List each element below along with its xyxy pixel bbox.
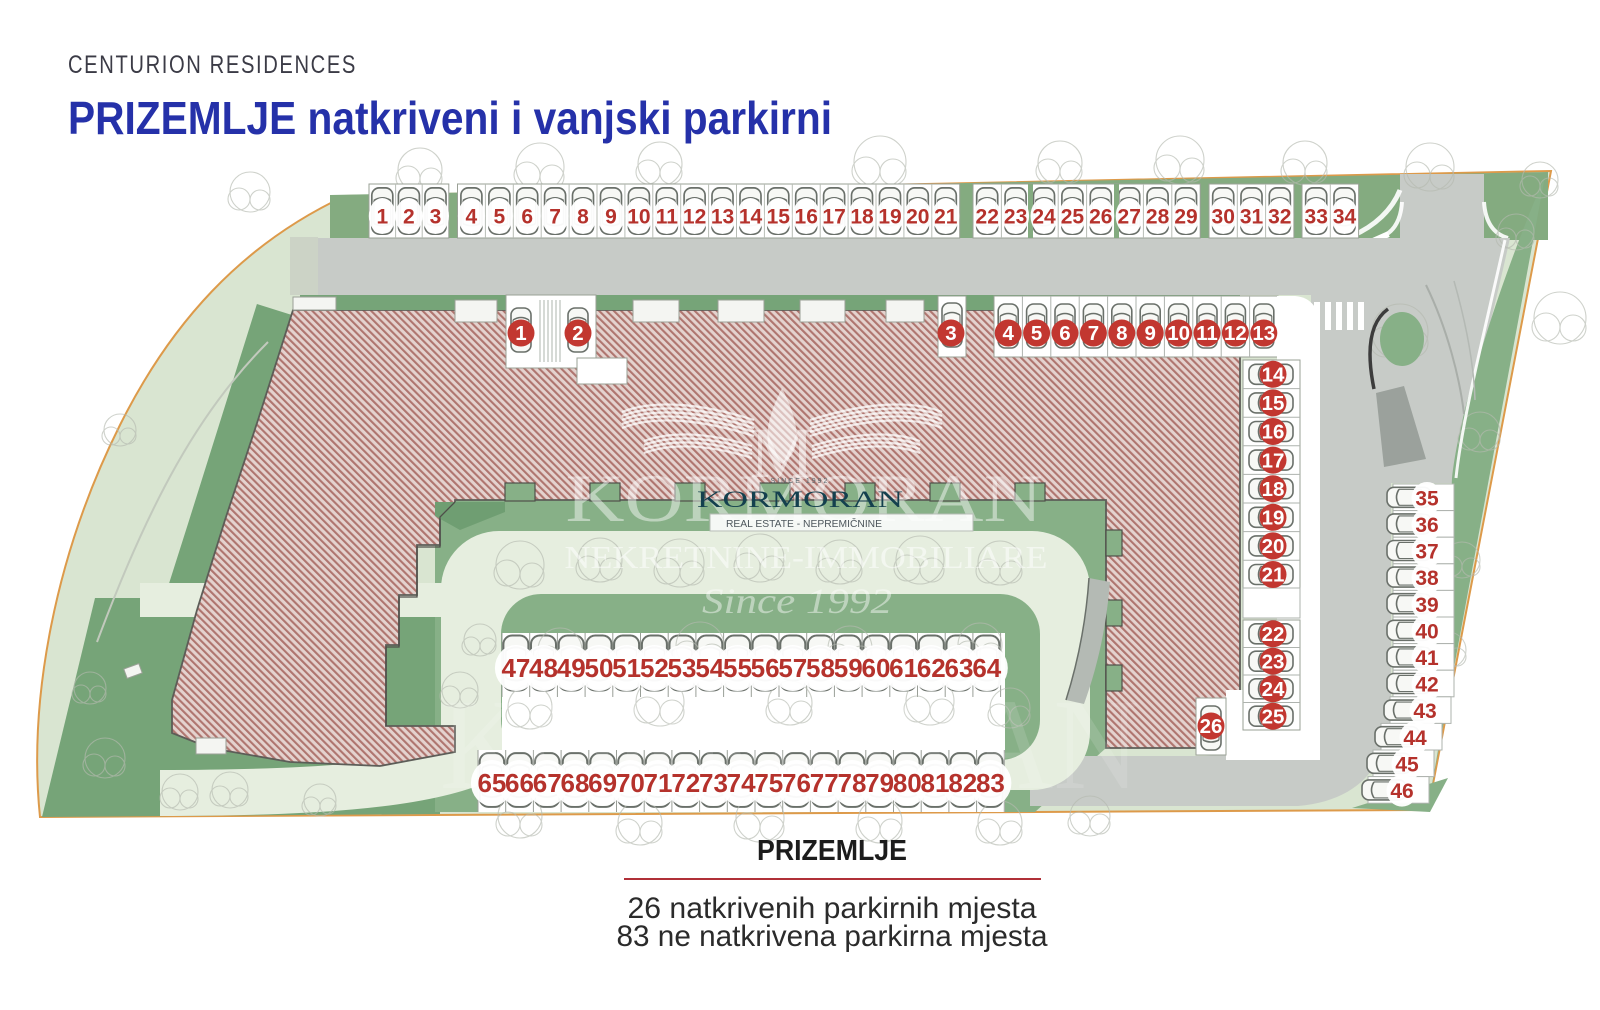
svg-text:49: 49 xyxy=(557,653,586,683)
svg-text:54: 54 xyxy=(695,653,724,683)
svg-text:45: 45 xyxy=(1395,753,1419,776)
svg-text:43: 43 xyxy=(1413,700,1436,723)
svg-text:60: 60 xyxy=(862,653,891,683)
svg-text:51: 51 xyxy=(612,653,641,683)
svg-text:30: 30 xyxy=(1212,205,1235,228)
svg-text:17: 17 xyxy=(1262,449,1285,472)
svg-text:15: 15 xyxy=(767,205,791,228)
svg-text:19: 19 xyxy=(878,205,901,228)
svg-text:31: 31 xyxy=(1240,205,1264,228)
svg-text:17: 17 xyxy=(822,205,845,228)
svg-text:66: 66 xyxy=(505,768,534,798)
svg-text:16: 16 xyxy=(1262,421,1285,444)
svg-text:12: 12 xyxy=(683,205,706,228)
svg-text:71: 71 xyxy=(644,768,673,798)
svg-text:26: 26 xyxy=(1089,205,1112,228)
svg-text:25: 25 xyxy=(1061,205,1085,228)
svg-text:6: 6 xyxy=(1059,322,1070,345)
svg-text:PRIZEMLJE natkriveni i vanjski: PRIZEMLJE natkriveni i vanjski parkirni xyxy=(68,92,832,144)
svg-text:74: 74 xyxy=(727,768,756,798)
svg-text:18: 18 xyxy=(850,205,874,228)
svg-text:76: 76 xyxy=(782,768,811,798)
svg-text:Since 1992: Since 1992 xyxy=(702,581,892,621)
svg-text:1: 1 xyxy=(376,205,388,228)
svg-text:19: 19 xyxy=(1262,507,1285,530)
svg-text:83 ne natkrivena parkirna mjes: 83 ne natkrivena parkirna mjesta xyxy=(617,920,1048,953)
svg-text:38: 38 xyxy=(1415,567,1439,590)
svg-text:14: 14 xyxy=(739,205,763,228)
svg-text:63: 63 xyxy=(945,653,974,683)
svg-text:33: 33 xyxy=(1305,205,1328,228)
svg-text:PRIZEMLJE: PRIZEMLJE xyxy=(757,835,907,867)
svg-text:18: 18 xyxy=(1262,478,1285,501)
svg-text:56: 56 xyxy=(751,653,780,683)
svg-text:20: 20 xyxy=(1262,535,1285,558)
svg-text:5: 5 xyxy=(1031,322,1042,345)
svg-text:72: 72 xyxy=(671,768,700,798)
svg-text:32: 32 xyxy=(1268,205,1291,228)
svg-text:52: 52 xyxy=(640,653,669,683)
svg-text:6: 6 xyxy=(521,205,533,228)
svg-text:7: 7 xyxy=(1088,322,1099,345)
svg-text:53: 53 xyxy=(668,653,697,683)
svg-text:34: 34 xyxy=(1333,205,1357,228)
svg-text:23: 23 xyxy=(1262,650,1285,673)
svg-text:24: 24 xyxy=(1262,678,1285,701)
svg-text:80: 80 xyxy=(893,768,922,798)
svg-text:83: 83 xyxy=(976,768,1005,798)
svg-text:10: 10 xyxy=(627,205,650,228)
svg-text:36: 36 xyxy=(1415,514,1438,537)
svg-text:27: 27 xyxy=(1118,205,1141,228)
svg-text:KORMORAN: KORMORAN xyxy=(697,487,904,512)
svg-text:8: 8 xyxy=(577,205,589,228)
svg-text:15: 15 xyxy=(1262,392,1285,415)
svg-text:48: 48 xyxy=(529,653,558,683)
svg-text:11: 11 xyxy=(1196,322,1218,345)
svg-text:40: 40 xyxy=(1415,620,1438,643)
svg-text:16: 16 xyxy=(795,205,818,228)
svg-text:8: 8 xyxy=(1116,322,1127,345)
svg-text:20: 20 xyxy=(906,205,929,228)
svg-text:22: 22 xyxy=(1262,623,1285,646)
svg-text:24: 24 xyxy=(1032,205,1056,228)
svg-text:46: 46 xyxy=(1390,780,1413,803)
svg-text:69: 69 xyxy=(588,768,617,798)
svg-text:7: 7 xyxy=(549,205,561,228)
svg-text:64: 64 xyxy=(972,653,1001,683)
svg-text:2: 2 xyxy=(403,205,415,228)
svg-text:82: 82 xyxy=(948,768,977,798)
svg-text:75: 75 xyxy=(754,768,783,798)
svg-text:2: 2 xyxy=(572,322,583,345)
svg-text:77: 77 xyxy=(810,768,839,798)
svg-text:65: 65 xyxy=(477,768,506,798)
svg-text:73: 73 xyxy=(699,768,728,798)
svg-text:68: 68 xyxy=(561,768,590,798)
svg-text:13: 13 xyxy=(1252,322,1275,345)
svg-text:29: 29 xyxy=(1174,205,1197,228)
svg-text:22: 22 xyxy=(976,205,999,228)
svg-text:47: 47 xyxy=(501,653,530,683)
svg-text:57: 57 xyxy=(778,653,807,683)
svg-text:70: 70 xyxy=(616,768,645,798)
svg-text:21: 21 xyxy=(934,205,958,228)
svg-text:58: 58 xyxy=(806,653,835,683)
svg-text:13: 13 xyxy=(711,205,734,228)
svg-text:37: 37 xyxy=(1415,541,1438,564)
svg-text:4: 4 xyxy=(1002,322,1014,345)
svg-text:3: 3 xyxy=(945,322,956,345)
svg-text:NEKRETNINE-IMMOBILIARE: NEKRETNINE-IMMOBILIARE xyxy=(565,539,1048,575)
svg-text:CENTURION RESIDENCES: CENTURION RESIDENCES xyxy=(68,51,357,79)
svg-text:26: 26 xyxy=(1200,715,1223,738)
svg-text:14: 14 xyxy=(1262,364,1285,387)
svg-text:10: 10 xyxy=(1167,322,1190,345)
svg-text:50: 50 xyxy=(585,653,614,683)
svg-text:42: 42 xyxy=(1415,674,1438,697)
svg-text:59: 59 xyxy=(834,653,863,683)
svg-text:REAL ESTATE - NEPREMIČNINE: REAL ESTATE - NEPREMIČNINE xyxy=(726,517,882,530)
svg-text:25: 25 xyxy=(1262,705,1285,728)
svg-text:67: 67 xyxy=(533,768,562,798)
svg-text:9: 9 xyxy=(605,205,617,228)
svg-text:81: 81 xyxy=(921,768,950,798)
svg-text:5: 5 xyxy=(494,205,506,228)
svg-text:21: 21 xyxy=(1262,564,1285,587)
svg-text:11: 11 xyxy=(656,205,679,228)
svg-text:23: 23 xyxy=(1004,205,1027,228)
svg-text:78: 78 xyxy=(838,768,867,798)
svg-text:41: 41 xyxy=(1415,647,1439,670)
svg-text:3: 3 xyxy=(430,205,442,228)
svg-text:39: 39 xyxy=(1415,594,1438,617)
svg-text:35: 35 xyxy=(1415,487,1439,510)
svg-text:SINCE 1992: SINCE 1992 xyxy=(771,478,830,485)
svg-text:44: 44 xyxy=(1403,727,1427,750)
svg-text:62: 62 xyxy=(917,653,946,683)
svg-text:12: 12 xyxy=(1224,322,1247,345)
svg-text:28: 28 xyxy=(1146,205,1170,228)
svg-text:9: 9 xyxy=(1144,322,1155,345)
svg-text:79: 79 xyxy=(865,768,894,798)
svg-text:1: 1 xyxy=(515,322,526,345)
svg-text:55: 55 xyxy=(723,653,752,683)
svg-text:61: 61 xyxy=(889,653,918,683)
svg-text:4: 4 xyxy=(466,205,478,228)
